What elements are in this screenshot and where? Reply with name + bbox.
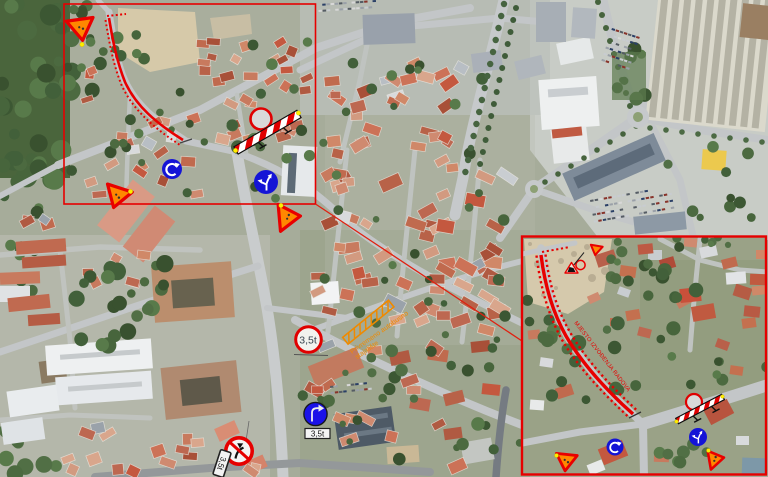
svg-text:3,5t: 3,5t xyxy=(311,429,325,438)
svg-text:3,5t: 3,5t xyxy=(299,334,317,346)
